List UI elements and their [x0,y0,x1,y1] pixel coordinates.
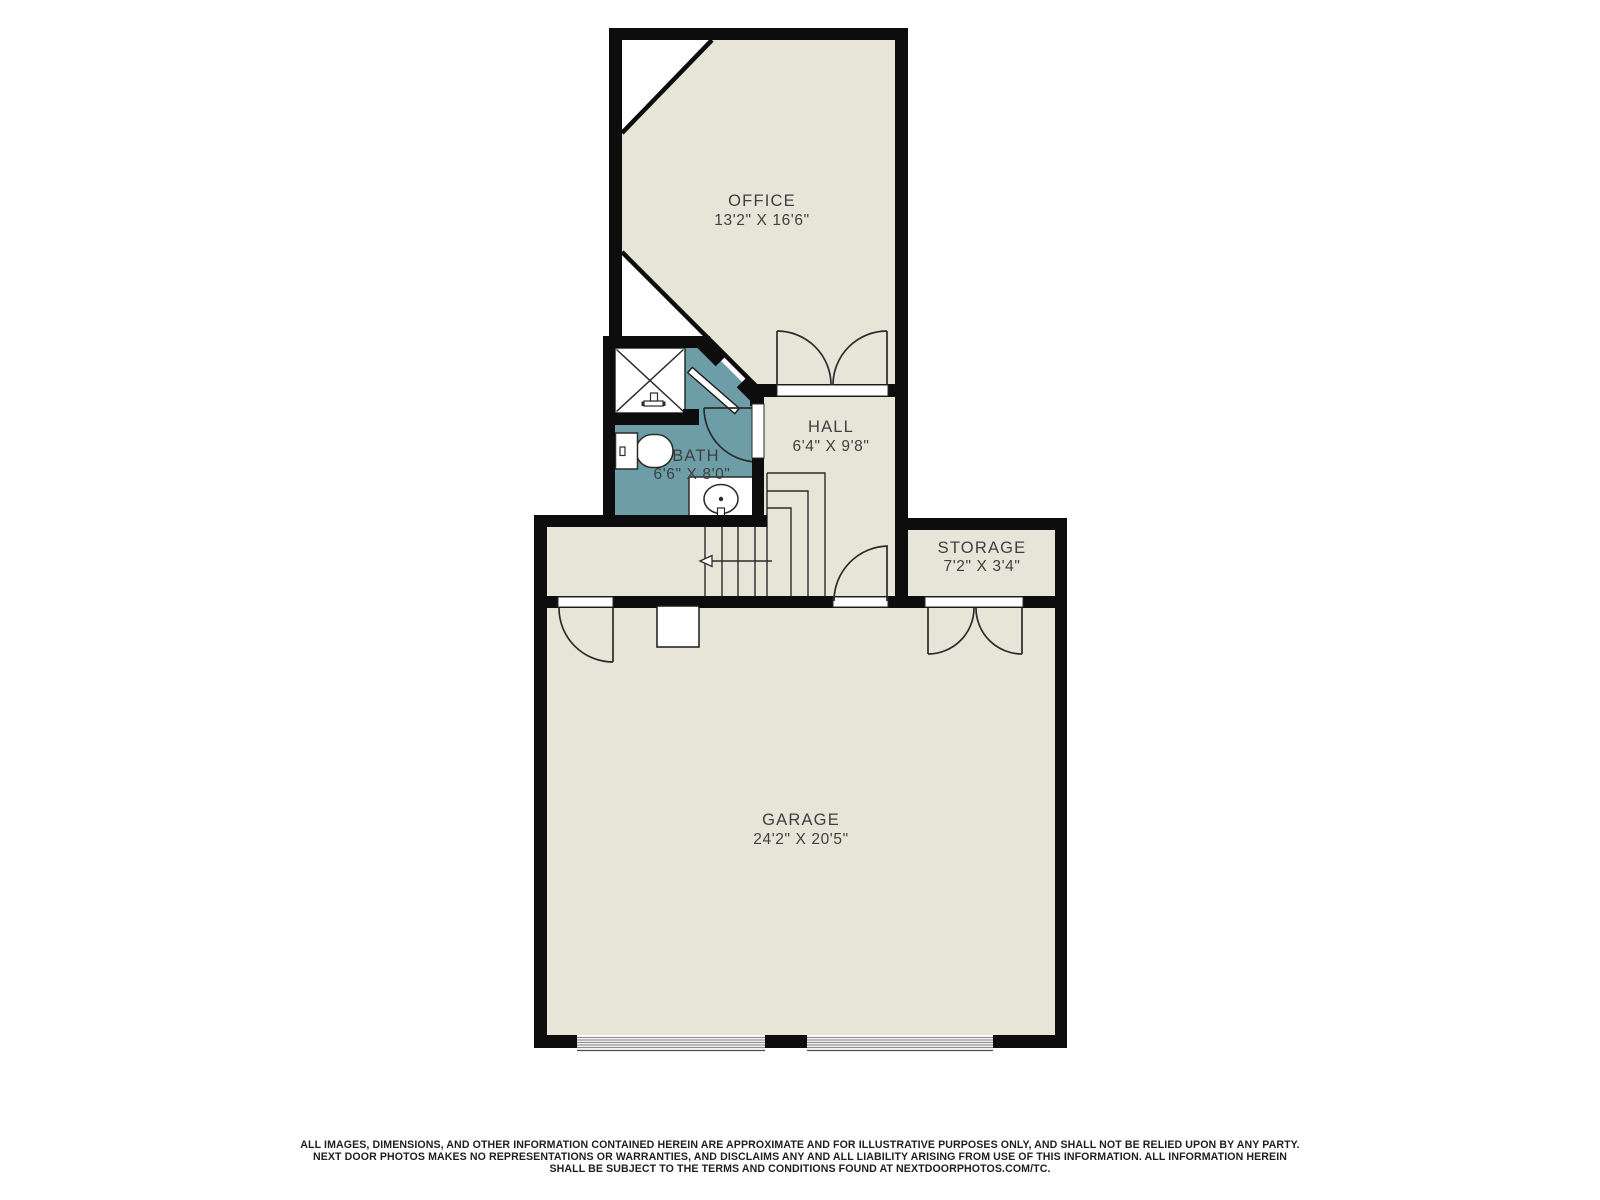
bath-bottom-wall [534,515,767,527]
storage-door-threshold [925,597,1023,607]
left-outer-wall [534,515,547,1048]
office-top-wall [609,28,908,40]
bath-top-wall [603,336,710,348]
bath-label: BATH [672,447,720,465]
landing-door-threshold [558,597,613,607]
bath-dims: 6'6" X 8'0" [654,466,731,483]
storage-label: STORAGE [938,539,1027,557]
disclaimer-line-2: NEXT DOOR PHOTOS MAKES NO REPRESENTATION… [0,1152,1600,1164]
storage-top-wall [896,518,1067,530]
storage-dims: 7'2" X 3'4" [944,558,1021,575]
bath-door-threshold [752,404,764,458]
sink-vanity [689,477,753,518]
office-dims: 13'2" X 16'6" [714,212,809,229]
toilet [616,433,674,469]
garage-door-right [807,1035,993,1051]
page: { "plan": { "colors": { "floor": "#e7e5d… [0,0,1600,1200]
bath-left-wall [603,336,615,527]
shower-corner-stub [683,409,699,425]
furnace-box [657,606,699,647]
office-left-wall [609,28,622,336]
garage-label: GARAGE [762,811,840,829]
garage-door-left [577,1035,765,1051]
disclaimer: ALL IMAGES, DIMENSIONS, AND OTHER INFORM… [0,1140,1600,1175]
floor-plan: OFFICE 13'2" X 16'6" BATH 6'6" X 8'0" HA… [0,0,1600,1200]
disclaimer-line-3: SHALL BE SUBJECT TO THE TERMS AND CONDIT… [0,1164,1600,1176]
right-outer-wall [1055,518,1067,1048]
hall-label: HALL [808,418,854,436]
hall-dims: 6'4" X 9'8" [793,438,870,455]
office-label: OFFICE [728,192,796,210]
hall-door-threshold [833,597,888,607]
garage-dims: 24'2" X 20'5" [753,831,848,848]
office-door-threshold [777,385,888,396]
